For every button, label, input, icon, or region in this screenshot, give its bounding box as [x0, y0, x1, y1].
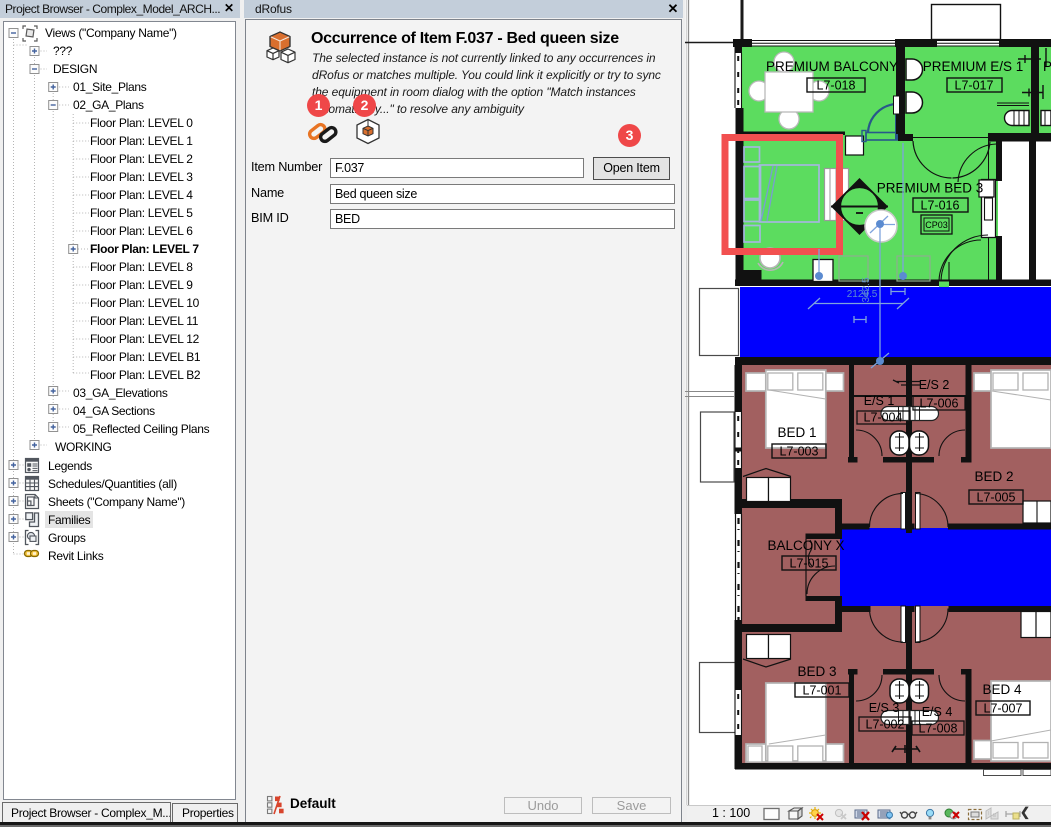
svg-text:L7-004: L7-004: [864, 411, 903, 425]
svg-text:L7-007: L7-007: [984, 702, 1023, 716]
svg-text:PREMIUM BALCONY: PREMIUM BALCONY: [766, 59, 898, 74]
svg-text:L7-015: L7-015: [790, 557, 829, 571]
svg-text:E/S 1: E/S 1: [864, 394, 895, 408]
svg-text:L7-005: L7-005: [977, 491, 1016, 505]
svg-text:BED 1: BED 1: [777, 425, 816, 440]
svg-text:L7-006: L7-006: [920, 397, 959, 411]
svg-text:L7-001: L7-001: [803, 684, 842, 698]
svg-text:E/S 3: E/S 3: [869, 701, 900, 715]
svg-text:342.5: 342.5: [861, 277, 872, 302]
svg-text:BED 2: BED 2: [974, 469, 1013, 484]
svg-text:BALCONY X: BALCONY X: [767, 538, 844, 553]
svg-text:E/S 4: E/S 4: [922, 705, 953, 719]
svg-text:L7-018: L7-018: [817, 79, 856, 93]
svg-text:CP03: CP03: [925, 220, 948, 230]
svg-text:PREMIUM BED 3: PREMIUM BED 3: [877, 181, 984, 196]
svg-text:BED 4: BED 4: [982, 682, 1022, 697]
svg-text:BED 3: BED 3: [797, 664, 836, 679]
svg-text:L7-003: L7-003: [780, 445, 819, 459]
svg-text:PR: PR: [1043, 59, 1051, 74]
svg-text:L7-016: L7-016: [921, 199, 960, 213]
svg-text:L7-002: L7-002: [866, 718, 905, 732]
svg-text:E/S 2: E/S 2: [919, 378, 950, 392]
svg-text:L7-008: L7-008: [919, 722, 958, 736]
svg-text:PREMIUM E/S 1: PREMIUM E/S 1: [923, 59, 1024, 74]
svg-text:L7-017: L7-017: [955, 79, 994, 93]
